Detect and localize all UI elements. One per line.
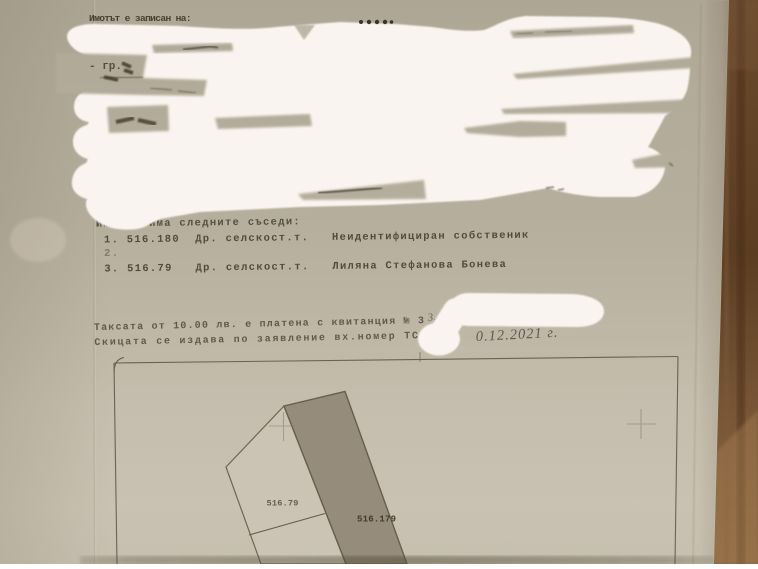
svg-text:516.179: 516.179 <box>357 515 396 525</box>
svg-text:Имотът е записан на:: Имотът е записан на: <box>89 13 191 24</box>
svg-text:516.79: 516.79 <box>267 499 299 509</box>
svg-text:- гр.: - гр. <box>89 61 122 73</box>
svg-text:2.: 2. <box>104 248 119 260</box>
